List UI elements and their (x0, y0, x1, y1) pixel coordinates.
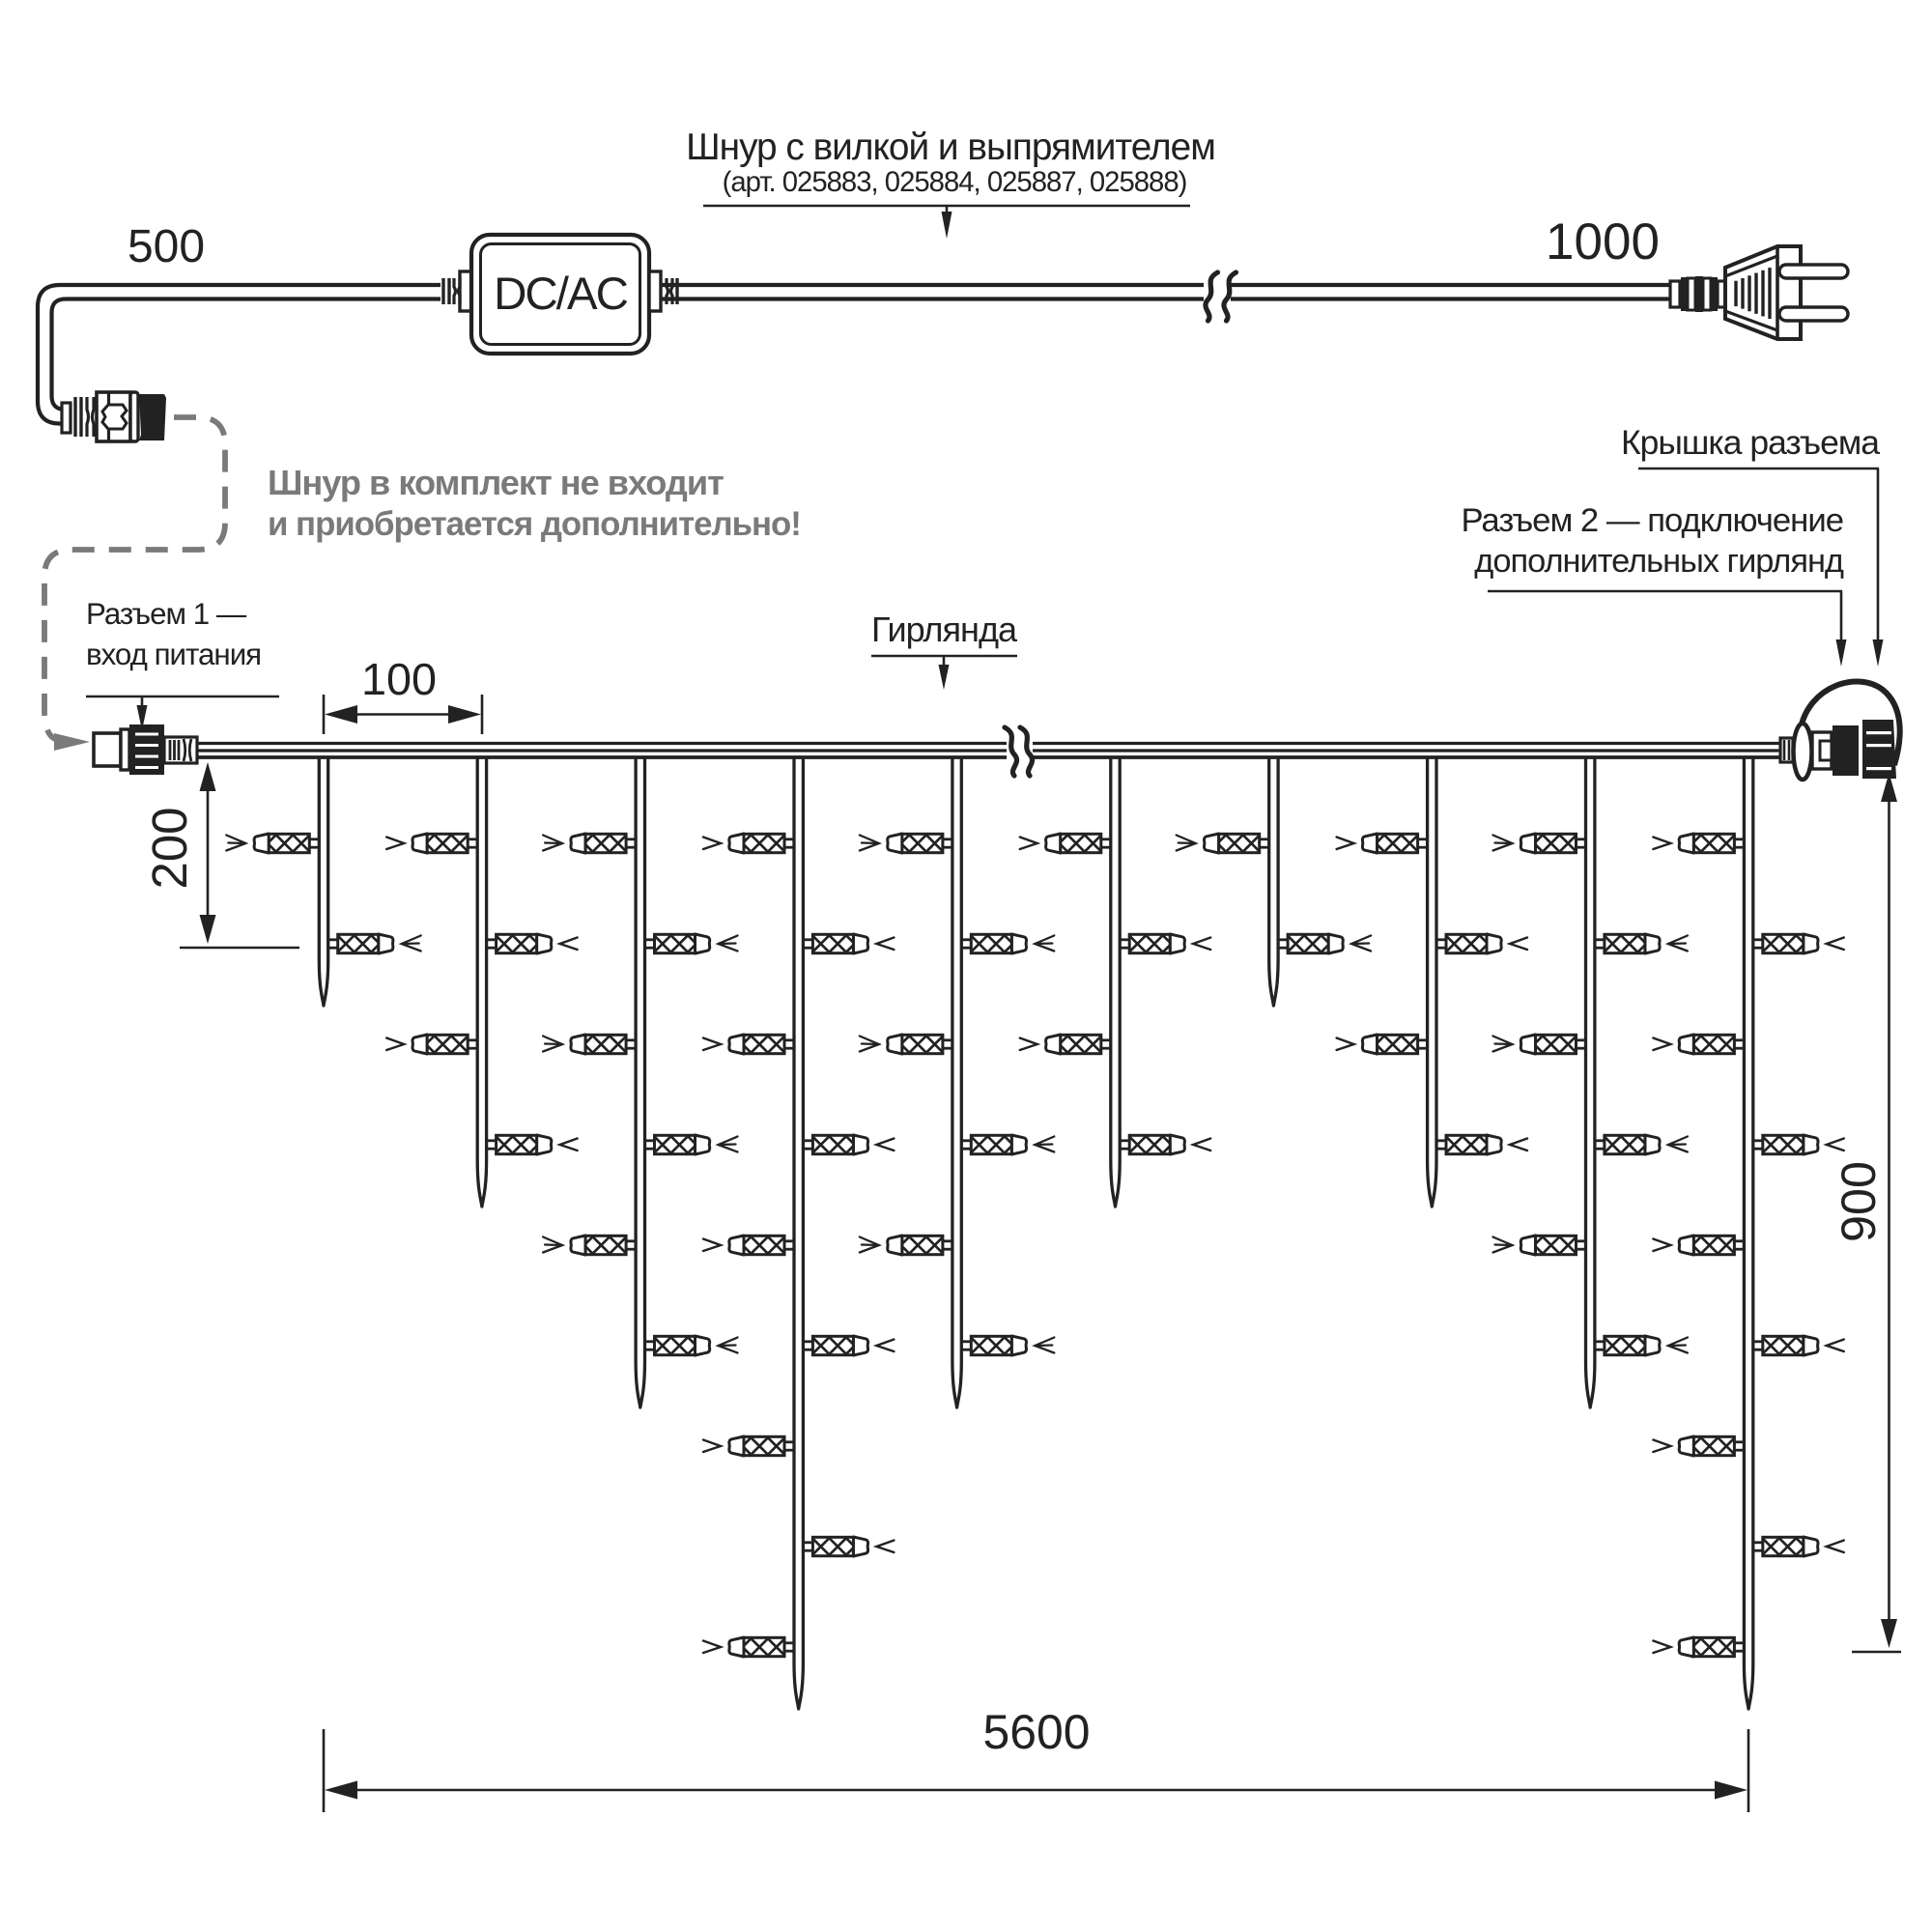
svg-text:Шнур в комплект не входит: Шнур в комплект не входит (268, 463, 724, 502)
svg-text:100: 100 (361, 654, 437, 704)
svg-text:Крышка разъема: Крышка разъема (1621, 423, 1880, 462)
svg-text:Разъем 1 —: Разъем 1 — (86, 597, 247, 631)
svg-text:и приобретается дополнительно!: и приобретается дополнительно! (268, 505, 801, 543)
svg-text:Разъем 2 — подключение: Разъем 2 — подключение (1461, 502, 1843, 539)
svg-text:500: 500 (128, 221, 205, 272)
svg-text:Гирлянда: Гирлянда (871, 610, 1018, 649)
svg-text:вход питания: вход питания (86, 638, 261, 671)
svg-text:5600: 5600 (983, 1705, 1091, 1759)
svg-text:(арт. 025883, 025884, 025887,: (арт. 025883, 025884, 025887, 025888) (723, 166, 1187, 198)
svg-text:200: 200 (142, 808, 197, 890)
svg-text:DC/AC: DC/AC (494, 269, 627, 320)
svg-text:900: 900 (1831, 1161, 1886, 1242)
svg-text:Шнур с вилкой и выпрямителем: Шнур с вилкой и выпрямителем (686, 127, 1215, 168)
svg-text:дополнительных гирлянд: дополнительных гирлянд (1474, 543, 1844, 580)
svg-text:1000: 1000 (1546, 213, 1660, 270)
